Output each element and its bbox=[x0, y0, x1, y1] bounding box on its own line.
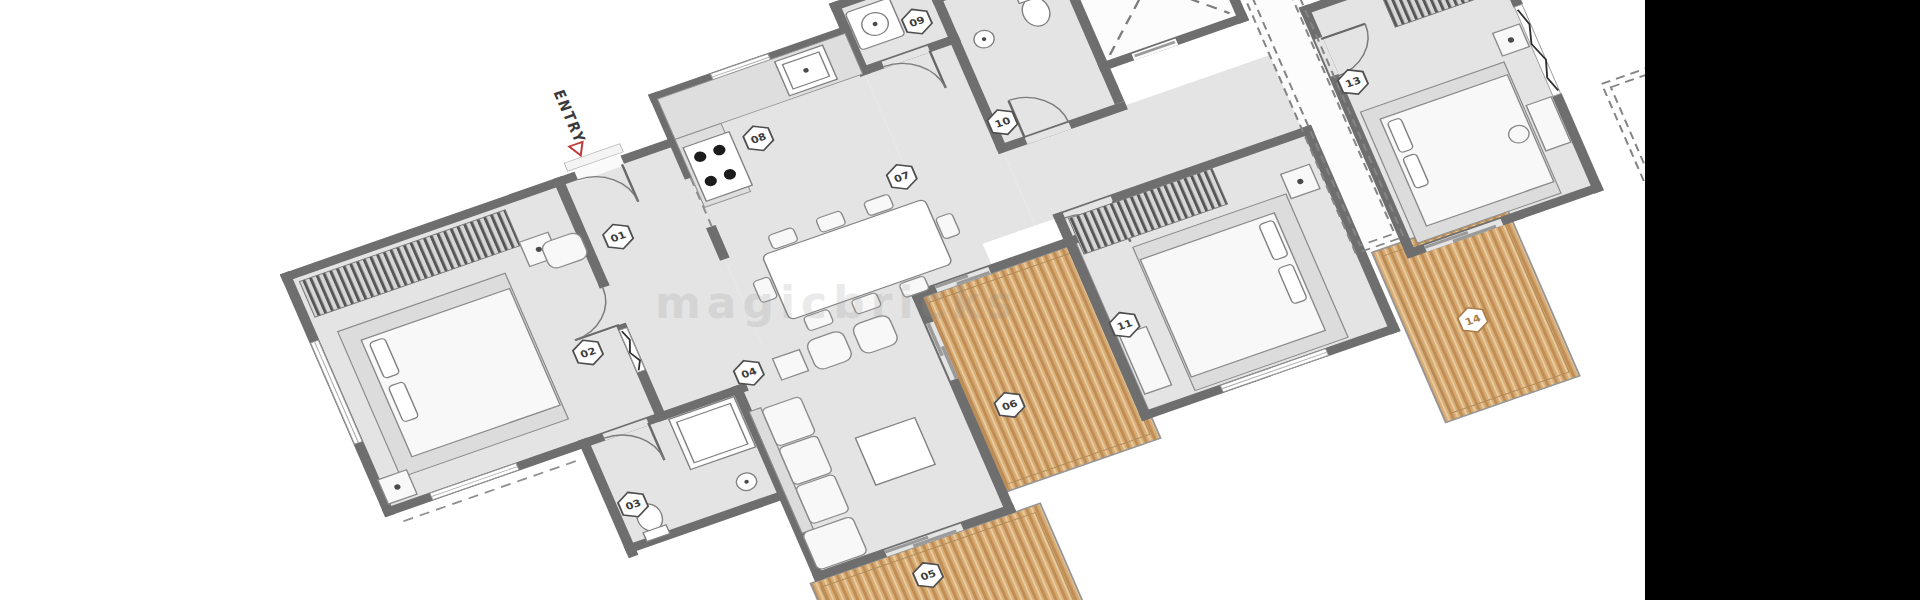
entry-label: ENTRY bbox=[550, 88, 589, 146]
right-black-panel bbox=[1645, 0, 1920, 600]
floorplan-canvas: ENTRY 01 02 03 04 05 06 07 bbox=[0, 0, 1920, 600]
entry-arrow-icon bbox=[569, 142, 587, 158]
watermark: magicbricks bbox=[655, 277, 1019, 328]
